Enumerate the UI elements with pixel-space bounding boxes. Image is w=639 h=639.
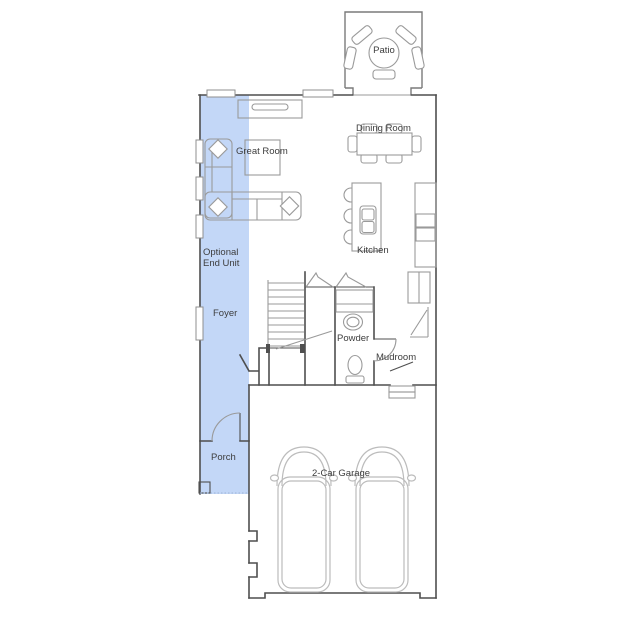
room-label-great-room: Great Room	[236, 147, 288, 158]
room-label-dining-room: Dining Room	[356, 124, 411, 135]
mudroom-closet-icon	[410, 307, 428, 337]
room-label-kitchen: Kitchen	[357, 246, 389, 257]
room-label-optional-end-unit: Optional End Unit	[203, 248, 255, 269]
room-label-mudroom: Mudroom	[376, 353, 416, 364]
room-label-garage: 2-Car Garage	[312, 469, 370, 480]
powder-cabinet-icon	[336, 290, 373, 312]
powder-sink-icon	[344, 314, 363, 330]
garage-steps-icon	[389, 386, 415, 392]
toilet-icon	[348, 356, 362, 375]
cooktop-icon	[416, 228, 435, 241]
garage-entry-door-icon	[389, 362, 415, 398]
bifold-closet-doors-icon	[306, 273, 366, 287]
kitchen-counter-icon	[415, 183, 436, 267]
floor-plan-drawing	[0, 0, 639, 639]
room-label-powder: Powder	[337, 334, 369, 345]
stairs-icon	[266, 280, 332, 353]
cooktop-icon	[416, 214, 435, 227]
room-label-foyer: Foyer	[213, 309, 237, 320]
room-label-porch: Porch	[211, 453, 236, 464]
floor-plan: Patio Dining Room Great Room Kitchen Opt…	[0, 0, 639, 639]
refrigerator-icon	[408, 272, 430, 303]
room-label-patio: Patio	[345, 46, 423, 57]
kitchen-island-icon	[344, 183, 381, 251]
